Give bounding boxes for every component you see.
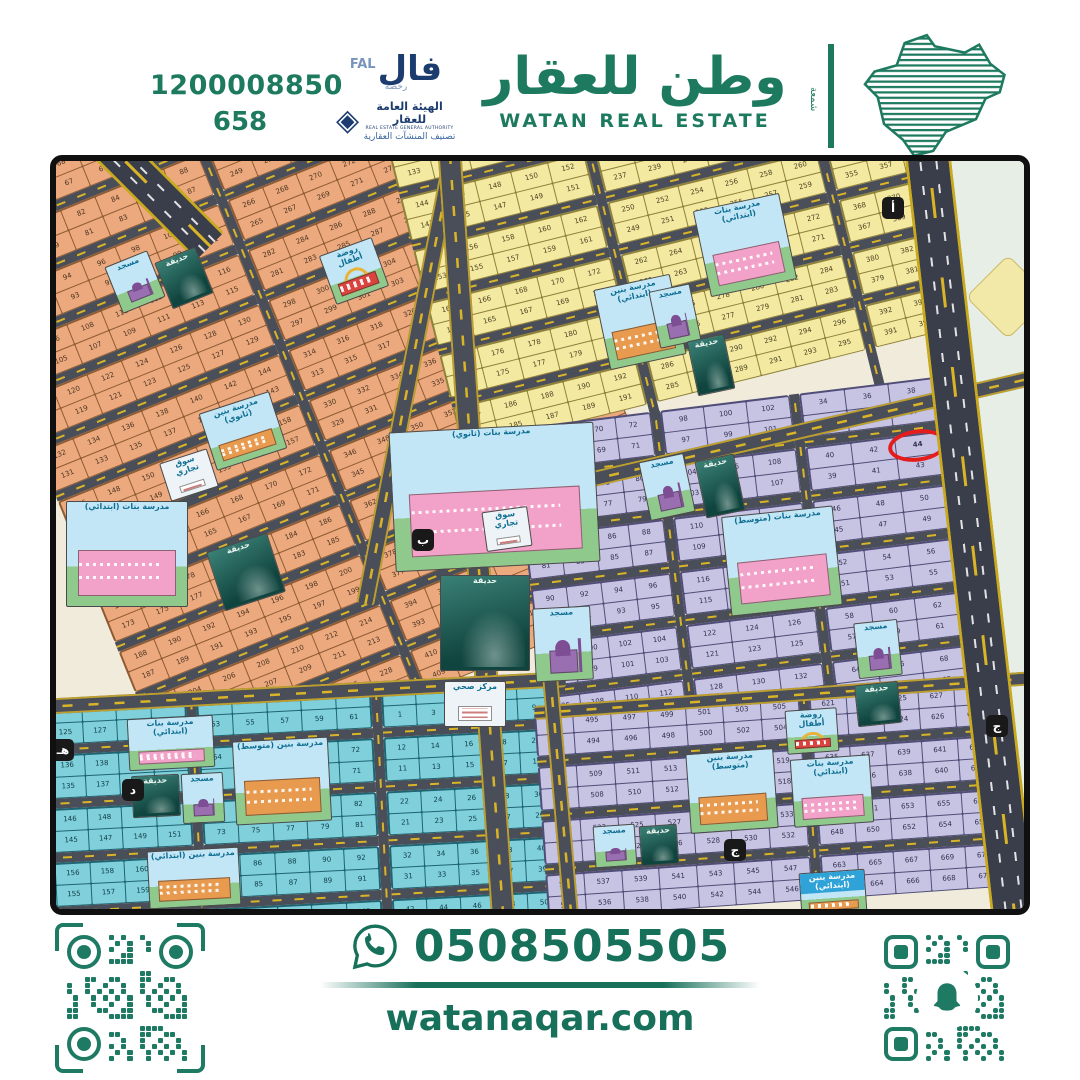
plot-cell: 156	[56, 863, 91, 885]
plot-cell: 151	[158, 824, 193, 846]
plot-cell: 143	[50, 831, 54, 853]
landmark-label: مسجد	[533, 607, 589, 621]
district-letter-chip: ج	[724, 839, 746, 861]
brand-vertical-text: شمعة	[808, 52, 819, 147]
landmark-label: حديقة	[640, 825, 677, 838]
landmark-art	[860, 633, 898, 674]
plot-cell: 11	[386, 758, 420, 780]
landmark-art	[186, 786, 220, 820]
plot-cell: 542	[698, 884, 736, 907]
plot-cell: 101	[610, 653, 646, 677]
plot-cell: 59	[302, 709, 337, 731]
landmark-art	[796, 777, 869, 823]
plot-cell: 500	[687, 722, 725, 745]
whatsapp-icon	[350, 922, 400, 972]
plot-cell: 652	[891, 816, 927, 838]
landmark-school-orange: مدرسة بنين (متوسط)	[232, 737, 332, 826]
landmark-art	[728, 520, 838, 612]
plot-cell: 82	[341, 794, 376, 816]
plot-cell: 24	[421, 789, 455, 811]
landmark-art	[694, 348, 729, 391]
landmark-art	[702, 468, 740, 513]
plot-cell: 33	[425, 864, 459, 886]
plot-cell: 498	[649, 725, 687, 748]
plot-cell: 86	[240, 853, 275, 875]
plot-cell: 654	[927, 814, 963, 836]
plot-cell: 153	[50, 885, 57, 907]
plot-cell: 72	[338, 740, 373, 762]
district-letter-chip: ج	[986, 715, 1008, 737]
plot-cell: 94	[601, 579, 637, 603]
mosque-building-icon	[658, 490, 683, 511]
landmark-school-orange: مدرسة بنين (متوسط)	[685, 748, 778, 834]
landmark-label: مدرسة بنات (ابتدائي)	[791, 755, 870, 780]
qr-finder-icon	[67, 1027, 101, 1061]
qr-code-website	[55, 923, 205, 1073]
plot-cell: 22	[388, 791, 422, 813]
brand-divider-bar	[828, 44, 834, 148]
plot-cell: 512	[653, 779, 691, 802]
header: 1200008850 658 FAL فال رخصة ◈ الهيئة الع…	[0, 22, 1080, 150]
school-pink-building-icon	[802, 794, 865, 820]
landmark-mosque: مسجد	[181, 772, 226, 824]
brand-name-arabic: وطن للعقار	[470, 48, 800, 108]
plot-cell: 44	[427, 897, 461, 915]
plot-cell: 252	[242, 155, 282, 156]
plot-cell: 639	[886, 742, 922, 764]
landmark-school-pink: مدرسة بنات (ابتدائي)	[127, 715, 216, 771]
plot-cell: 157	[91, 882, 126, 904]
plot-cell: 13	[420, 756, 454, 778]
plot-cell: 509	[577, 763, 615, 786]
plot-cell: 532	[769, 825, 807, 848]
plot-cell: 513	[652, 758, 690, 781]
fal-logo-en: FAL	[350, 57, 376, 86]
fal-license-logo: FAL فال رخصة ◈ الهيئة العامة للعقار REAL…	[336, 52, 456, 142]
plot-cell: 98	[278, 905, 313, 915]
plot-cell: 667	[893, 849, 929, 871]
plot-cell: 544	[736, 881, 774, 904]
plot-cell: 641	[922, 739, 958, 761]
plot-cell: 655	[926, 793, 962, 815]
plot-cell: 545	[734, 860, 772, 883]
plot-cell: 537	[584, 871, 622, 894]
qr-finder-icon	[976, 935, 1010, 969]
plots-map: 3436384042444633353739414345485052545658…	[50, 155, 1030, 915]
school-blue-building-icon	[809, 899, 859, 911]
mosque-building-icon	[549, 649, 579, 673]
authority-name-en: REAL ESTATE GENERAL AUTHORITY	[363, 126, 456, 131]
license-number: 658	[150, 107, 330, 137]
plot-cell: 104	[642, 628, 678, 652]
authority-name-ar: الهيئة العامة للعقار	[363, 100, 456, 126]
health-building-icon	[458, 706, 491, 721]
landmark-school-pink: مدرسة بنات (ابتدائي)	[693, 193, 797, 297]
plot-cell: 71	[339, 761, 374, 783]
qr-finder-dot	[986, 945, 1001, 960]
brand-logo: وطن للعقار WATAN REAL ESTATE	[470, 48, 800, 132]
plot-cell: 33	[1024, 655, 1030, 680]
plot-cell: 88	[629, 521, 665, 545]
saudi-arabia-map-icon	[850, 32, 1010, 162]
plot-cell: 57	[268, 710, 303, 732]
plot-cell: 92	[567, 583, 603, 607]
landmark-mosque: مسجد	[532, 606, 594, 683]
plot-cell: 71	[618, 434, 654, 458]
plot-cell: 158	[90, 861, 125, 883]
landmark-label: مدرسة بنات (ابتدائي)	[128, 716, 213, 740]
district-letter-chip: د	[122, 779, 144, 801]
plot-cell: 21	[389, 812, 423, 834]
market-building-icon	[497, 535, 521, 545]
school-pink-building-icon	[712, 241, 786, 286]
plot-cell: 96	[243, 907, 278, 915]
landmark-park: حديقة	[639, 824, 680, 867]
landmark-label: مدرسة بنات (ابتدائي)	[67, 502, 187, 513]
school-orange-building-icon	[158, 877, 231, 902]
plot-cell: 95	[638, 595, 674, 619]
contact-numbers: 1200008850 658	[150, 70, 330, 137]
plot-cell: 127	[83, 720, 118, 742]
plot-cell: 89	[311, 870, 346, 892]
plot-cell: 633	[1026, 678, 1030, 700]
plot-cell: 496	[612, 728, 650, 751]
authority-logo: ◈ الهيئة العامة للعقار REAL ESTATE GENER…	[336, 100, 456, 142]
plot-cell: 87	[276, 872, 311, 894]
qr-code-snapchat	[872, 923, 1022, 1073]
landmark-school-pink: مدرسة بنات (متوسط)	[721, 505, 843, 616]
landmark-school-pink: مدرسة بنات (ابتدائي)	[790, 754, 875, 827]
plot-cell: 155	[57, 884, 92, 906]
plot-cell: 508	[578, 784, 616, 807]
plot-cell: 73	[151, 155, 192, 157]
plot-cell: 81	[342, 815, 377, 837]
school-pink-building-icon	[737, 553, 831, 605]
mosque-building-icon	[606, 851, 626, 862]
landmark-art	[702, 216, 791, 292]
landmark-label: روضة أطفال	[786, 708, 837, 731]
plot-cell: 136	[425, 155, 465, 157]
landmark-school-pink: مدرسة بنات (ابتدائي)	[66, 501, 188, 607]
plot-cell: 541	[659, 866, 697, 889]
plot-cell: 147	[88, 828, 123, 850]
plot-cell: 536	[586, 892, 624, 915]
qr-finder-dot	[77, 1037, 92, 1052]
qr-finder-icon	[67, 935, 101, 969]
brand-name-english: WATAN REAL ESTATE	[470, 110, 800, 132]
landmark-art	[445, 589, 525, 667]
plot-cell: 40	[1028, 688, 1030, 713]
whatsapp-phone-number: 0508505505	[414, 921, 730, 972]
school-orange-building-icon	[698, 793, 768, 825]
plot-cell: 245	[739, 155, 777, 156]
plot-cell: 133	[50, 778, 51, 800]
qr-finder-dot	[77, 945, 92, 960]
plot-cell: 103	[644, 649, 680, 673]
landmark-art	[860, 695, 896, 722]
landmark-label: حديقة	[441, 576, 529, 587]
plot-cell: 502	[724, 720, 762, 743]
plot-cell: 44	[895, 432, 940, 457]
kindergarten-building-icon	[794, 737, 831, 748]
plot-cell: 139	[503, 155, 543, 159]
landmark-school-blue: مدرسة بنين (ابتدائي)	[799, 869, 868, 915]
plot-cell: 34	[424, 843, 458, 865]
landmark-mosque: مسجد	[593, 824, 638, 869]
landmark-art	[490, 529, 527, 547]
website-url: watanaqar.com	[300, 998, 780, 1039]
landmark-school-orange: مدرسة بنين (ابتدائي)	[147, 847, 242, 910]
school-pink-building-icon	[78, 550, 177, 596]
map-canvas: 3436384042444633353739414345485052545658…	[56, 161, 1024, 909]
landmark-health: مركز صحي	[444, 681, 506, 727]
qr-finder-dot	[894, 945, 909, 960]
plot-cell: 145	[54, 830, 89, 852]
flyer-page: 1200008850 658 FAL فال رخصة ◈ الهيئة الع…	[0, 0, 1080, 1080]
plot-cell: 72	[615, 414, 651, 438]
district-letter-chip: ب	[412, 529, 434, 551]
plot-cell: 88	[275, 851, 310, 873]
plot-cell: 92	[344, 848, 379, 870]
landmark-mosque: مسجد	[853, 619, 903, 679]
mosque-building-icon	[194, 803, 214, 817]
qr-finder-icon	[884, 935, 918, 969]
plot-cell: 55	[233, 712, 268, 734]
plot-cell: 539	[622, 868, 660, 891]
unified-number: 1200008850	[150, 70, 330, 101]
plot-cell: 510	[616, 781, 654, 804]
authority-diamond-icon: ◈	[336, 106, 359, 136]
plot-cell: 138	[84, 753, 119, 775]
landmark-market: سوق تجاري	[481, 506, 532, 552]
school-orange-building-icon	[244, 777, 321, 815]
landmark-label: مركز صحي	[445, 682, 505, 693]
fal-logo-ar: فال	[378, 52, 443, 86]
plot-cell: 12	[385, 737, 419, 759]
landmark-art	[538, 620, 589, 678]
plot-cell: 91	[345, 868, 380, 890]
plot-cell: 358	[862, 155, 900, 160]
plot-cell: 135	[51, 776, 86, 798]
landmark-art	[646, 468, 690, 517]
snapchat-ghost-icon	[916, 967, 978, 1029]
plot-cell: 61	[337, 707, 372, 729]
landmark-art	[133, 738, 210, 767]
landmark-park: حديقة	[440, 575, 530, 671]
plot-cell: 102	[607, 632, 643, 656]
plot-cell: 538	[623, 889, 661, 912]
plot-cell: 92	[50, 275, 54, 307]
plot-cell: 638	[887, 763, 923, 785]
plot-cell: 90	[309, 849, 344, 871]
plot-cell: 668	[931, 868, 967, 890]
plot-cell: 100	[312, 903, 347, 915]
contact-block: 0508505505 watanaqar.com	[300, 921, 780, 1039]
plot-cell: 653	[890, 795, 926, 817]
mosque-building-icon	[667, 320, 689, 340]
mosque-building-icon	[127, 283, 152, 303]
plot-cell: 144	[50, 811, 53, 833]
plot-cell: 73	[204, 822, 239, 844]
plot-cell: 666	[895, 870, 931, 892]
plot-cell: 137	[86, 774, 121, 796]
plot-cell: 65	[50, 180, 55, 212]
landmark-art	[599, 838, 633, 864]
plot-cell: 149	[123, 826, 158, 848]
plot-cell: 543	[697, 863, 735, 886]
plot-cell: 540	[661, 887, 699, 910]
landmark-park: حديقة	[854, 681, 902, 727]
landmark-label: مسجد	[594, 825, 635, 839]
plot-cell: 632	[1028, 699, 1030, 721]
plot-cell: 32	[391, 845, 425, 867]
plot-cell: 146	[53, 809, 88, 831]
plot-cell: 23	[422, 810, 456, 832]
landmark-art	[238, 751, 327, 821]
district-letter-chip: هـ	[52, 739, 74, 761]
plot-cell: 93	[603, 599, 639, 623]
landmark-art	[656, 298, 696, 344]
qr-finder-dot	[894, 1037, 909, 1052]
landmark-art	[805, 892, 862, 913]
school-pink-building-icon	[138, 748, 205, 765]
landmark-art	[645, 838, 674, 862]
plot-cell: 85	[597, 546, 633, 570]
plot-cell: 102	[347, 901, 382, 915]
market-building-icon	[179, 479, 205, 493]
landmark-art	[152, 861, 236, 905]
qr-finder-icon	[159, 935, 193, 969]
landmark-art	[71, 515, 183, 603]
plot-cell: 277	[437, 155, 477, 158]
plot-cell: 669	[929, 847, 965, 869]
plot-cell: 87	[631, 542, 667, 566]
plot-cell: 626	[920, 706, 956, 728]
mosque-building-icon	[868, 654, 890, 671]
plot-cell: 85	[241, 874, 276, 896]
plot-cell: 1	[383, 704, 417, 726]
landmark-art	[449, 695, 501, 723]
plot-cell: 390	[1026, 202, 1030, 230]
landmark-art	[692, 771, 774, 829]
landmark-kindergarten: روضة أطفال	[785, 707, 840, 755]
plot-cell: 14	[418, 736, 452, 758]
qr-finder-icon	[884, 1027, 918, 1061]
plot-cell: 31	[392, 866, 426, 888]
footer: 0508505505 watanaqar.com	[0, 915, 1080, 1080]
landmark-label: مدرسة بنين (ابتدائي)	[800, 870, 865, 894]
landmark-label: مسجد	[182, 773, 223, 786]
plot-cell: 511	[614, 760, 652, 783]
plot-cell: 42	[393, 899, 427, 915]
authority-classification: تصنيف المنشآت العقارية	[363, 132, 456, 142]
qr-finder-dot	[169, 945, 184, 960]
plot-cell: 96	[635, 574, 671, 598]
landmark-art	[791, 730, 834, 750]
plot-cell: 640	[923, 760, 959, 782]
plot-cell: 154	[50, 864, 56, 886]
footer-divider	[320, 982, 760, 988]
district-letter-chip: أ	[882, 197, 904, 219]
plot-cell: 148	[87, 807, 122, 829]
plot-cell: 494	[575, 730, 613, 753]
